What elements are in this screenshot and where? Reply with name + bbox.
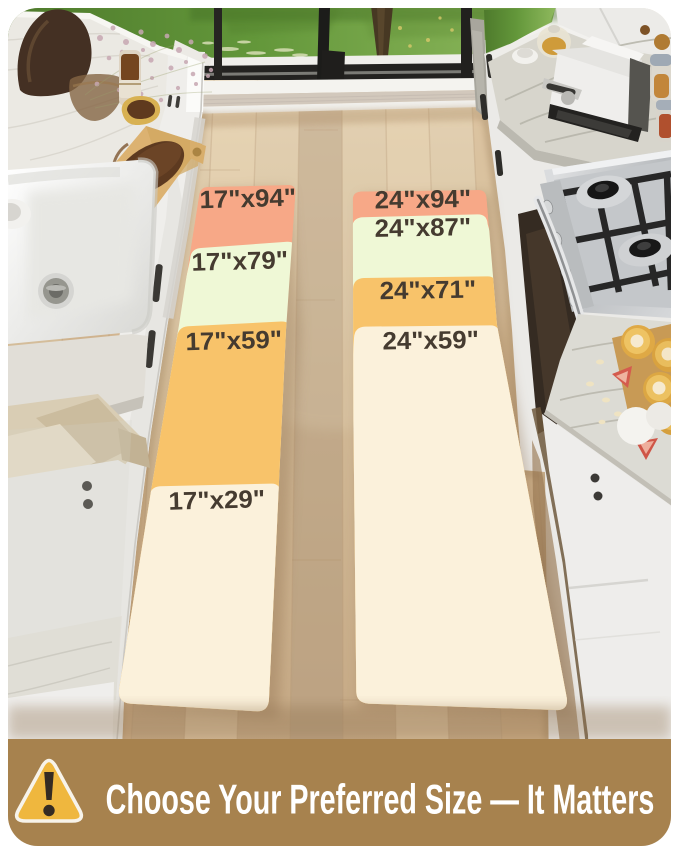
- svg-text:24"x71": 24"x71": [379, 276, 476, 305]
- svg-text:24"x94": 24"x94": [374, 185, 471, 214]
- svg-text:17"x79": 17"x79": [191, 247, 288, 277]
- svg-text:24"x87": 24"x87": [374, 214, 471, 243]
- svg-text:17"x59": 17"x59": [185, 326, 282, 356]
- svg-text:24"x59": 24"x59": [382, 326, 479, 355]
- svg-text:17"x94": 17"x94": [199, 184, 296, 214]
- svg-text:Choose Your Preferred Size — I: Choose Your Preferred Size — It Matters: [106, 775, 655, 823]
- svg-text:17"x29": 17"x29": [168, 486, 265, 516]
